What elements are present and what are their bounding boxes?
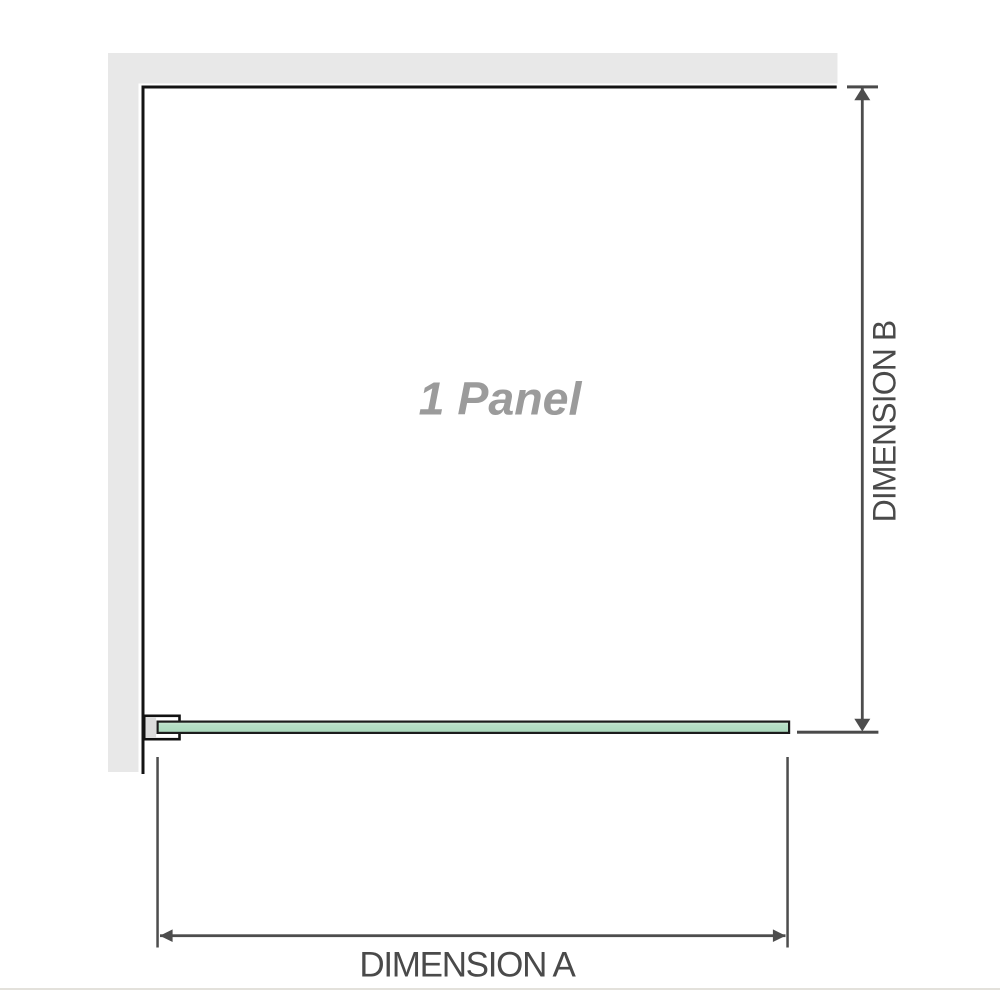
svg-text:1 Panel: 1 Panel	[419, 373, 583, 425]
svg-text:DIMENSION B: DIMENSION B	[866, 321, 902, 523]
svg-text:DIMENSION A: DIMENSION A	[359, 946, 576, 985]
